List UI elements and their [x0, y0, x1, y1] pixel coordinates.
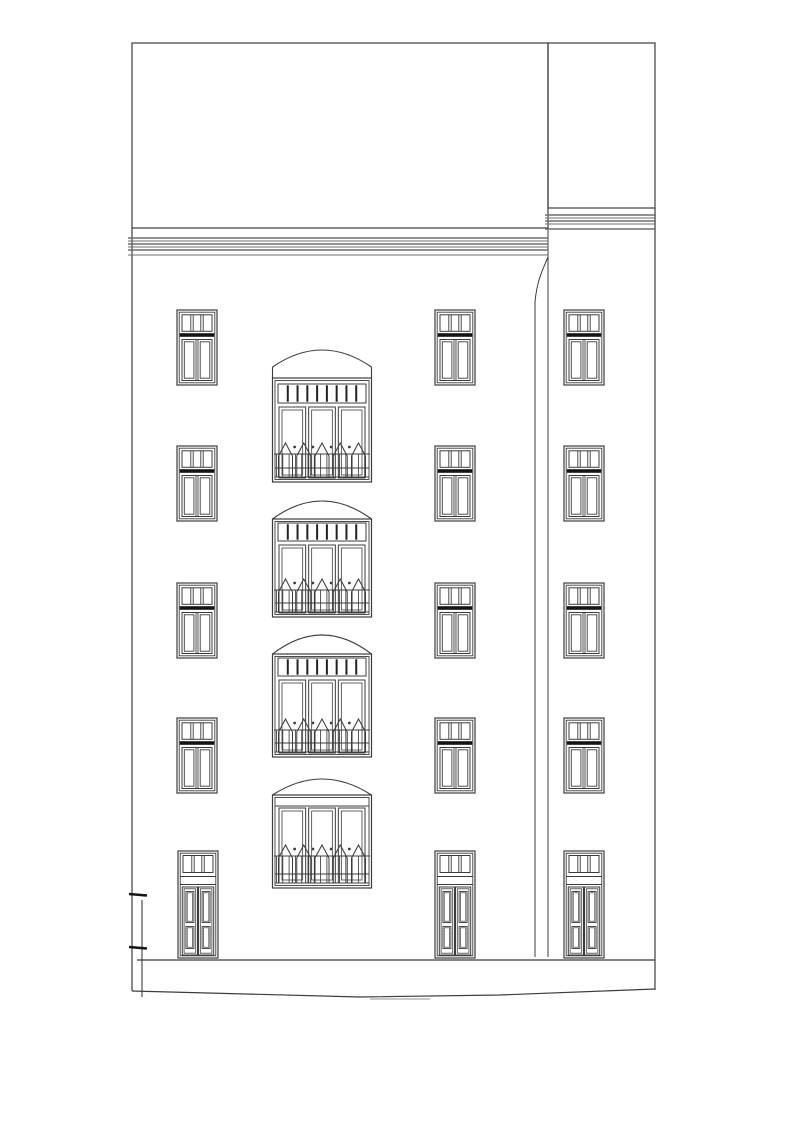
- corner-curve: [535, 257, 548, 957]
- window: [435, 583, 475, 658]
- bay-window: [273, 635, 372, 757]
- window: [435, 718, 475, 793]
- window: [177, 583, 217, 658]
- window: [435, 310, 475, 385]
- main-cornice: [128, 238, 548, 255]
- window: [564, 446, 604, 521]
- building-elevation-drawing: [0, 0, 800, 1134]
- bay-window: [273, 350, 372, 482]
- door: [435, 851, 475, 958]
- side-cornice: [545, 215, 656, 229]
- window: [177, 446, 217, 521]
- window: [564, 310, 604, 385]
- door: [178, 851, 218, 958]
- bay-window: [273, 501, 372, 617]
- window-grid: [177, 310, 604, 793]
- door-row: [178, 851, 604, 958]
- bay-column: [273, 350, 372, 888]
- bay-window: [273, 779, 372, 888]
- window: [177, 718, 217, 793]
- drawing-sheet: [0, 0, 800, 1134]
- window: [177, 310, 217, 385]
- door: [564, 851, 604, 958]
- window: [564, 718, 604, 793]
- window: [564, 583, 604, 658]
- window: [435, 446, 475, 521]
- base-and-ground: [132, 960, 655, 999]
